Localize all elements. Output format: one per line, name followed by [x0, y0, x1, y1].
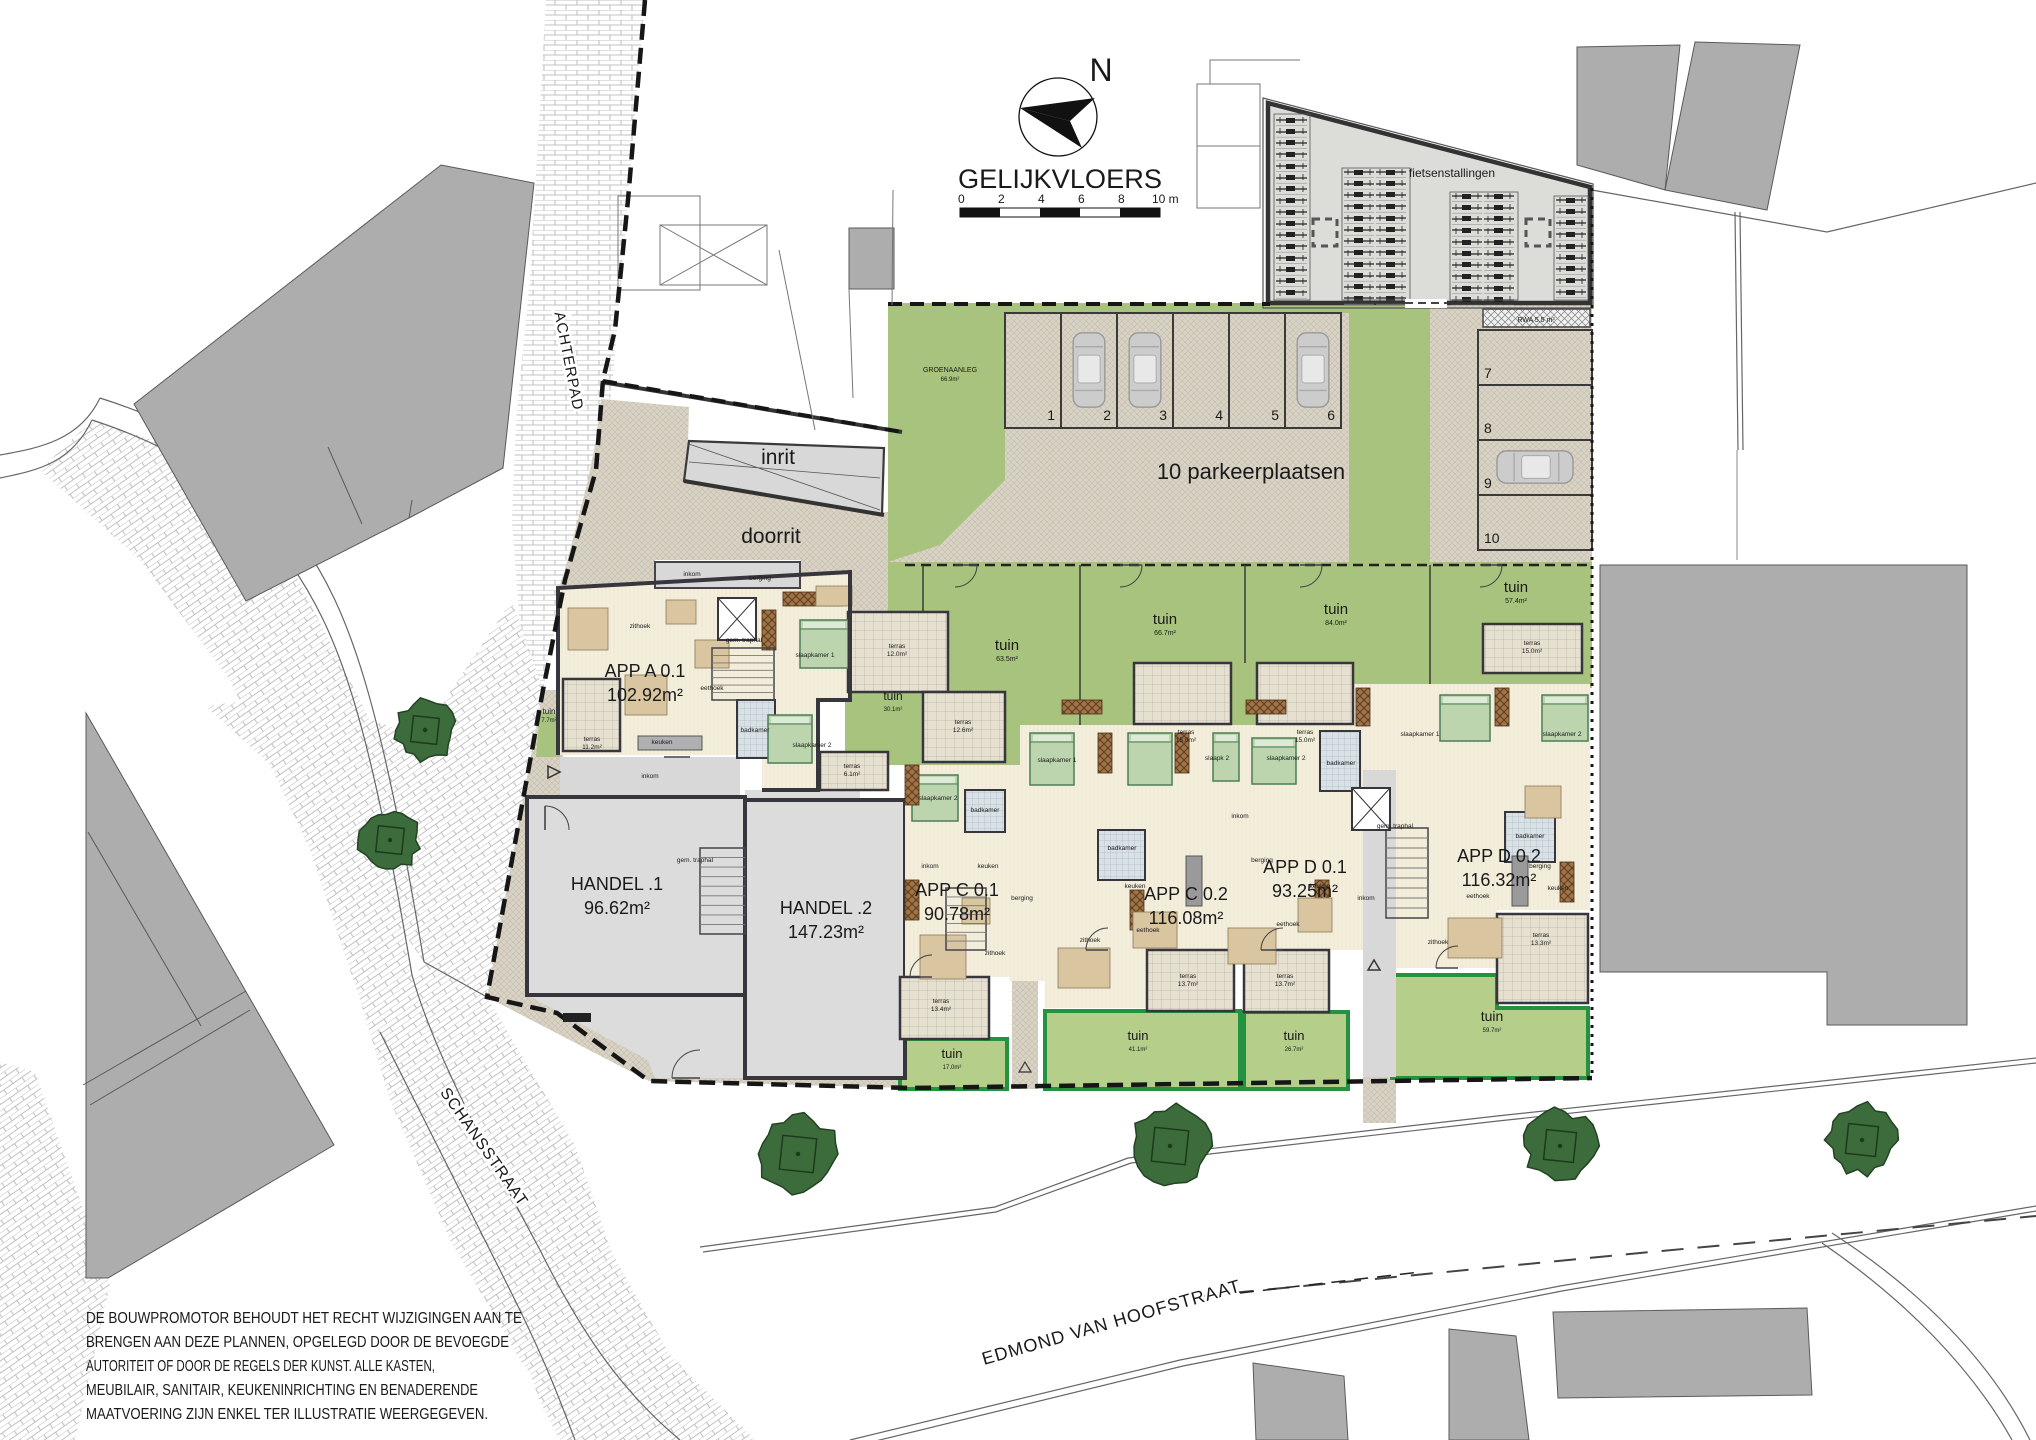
svg-text:6: 6 — [1078, 192, 1085, 206]
svg-text:102.92m²: 102.92m² — [607, 685, 683, 705]
svg-text:13.7m²: 13.7m² — [1275, 981, 1296, 988]
svg-text:10 parkeerplaatsen: 10 parkeerplaatsen — [1157, 459, 1345, 484]
svg-text:3: 3 — [1159, 407, 1167, 423]
svg-text:tuin: tuin — [883, 689, 902, 703]
svg-text:doorrit: doorrit — [741, 525, 801, 548]
svg-text:APP D 0.1: APP D 0.1 — [1263, 857, 1347, 877]
svg-text:26.7m²: 26.7m² — [1285, 1047, 1304, 1053]
svg-text:11.2m²: 11.2m² — [582, 744, 603, 751]
svg-text:keuken: keuken — [652, 739, 673, 746]
svg-text:terras: terras — [1297, 729, 1314, 736]
svg-text:HANDEL .1: HANDEL .1 — [571, 874, 663, 894]
svg-text:slaapkamer 1: slaapkamer 1 — [1037, 757, 1076, 764]
svg-text:HANDEL .2: HANDEL .2 — [780, 898, 872, 918]
svg-text:tuin: tuin — [1284, 1028, 1305, 1043]
svg-text:10 m: 10 m — [1152, 192, 1179, 206]
svg-text:13.3m²: 13.3m² — [1531, 940, 1552, 947]
svg-text:tuin: tuin — [942, 1046, 963, 1061]
svg-text:59.7m²: 59.7m² — [1483, 1028, 1502, 1034]
svg-text:APP C 0.2: APP C 0.2 — [1144, 884, 1228, 904]
svg-text:116.32m²: 116.32m² — [1462, 870, 1537, 890]
svg-text:N: N — [1089, 52, 1112, 88]
svg-text:tuin: tuin — [1324, 601, 1348, 618]
svg-text:tuin: tuin — [543, 707, 556, 716]
svg-text:terras: terras — [584, 736, 601, 743]
svg-text:terras: terras — [844, 763, 861, 770]
svg-text:RWA 5.5 m³: RWA 5.5 m³ — [1517, 317, 1555, 324]
svg-text:terras: terras — [1524, 640, 1541, 647]
svg-text:6.1m²: 6.1m² — [844, 771, 861, 778]
svg-text:inkom: inkom — [1357, 895, 1374, 902]
svg-text:2: 2 — [1103, 407, 1111, 423]
svg-text:keuken: keuken — [1548, 885, 1569, 892]
svg-text:5: 5 — [1271, 407, 1279, 423]
svg-text:terras: terras — [889, 643, 906, 650]
svg-text:9: 9 — [1484, 475, 1492, 491]
svg-text:terras: terras — [1277, 973, 1294, 980]
svg-text:badkamer: badkamer — [1108, 845, 1138, 852]
svg-text:inrit: inrit — [761, 446, 795, 469]
svg-text:tuin: tuin — [1153, 611, 1177, 628]
svg-text:MAATVOERING ZIJN ENKEL TER ILL: MAATVOERING ZIJN ENKEL TER ILLUSTRATIE W… — [86, 1406, 488, 1423]
svg-text:keuken: keuken — [1125, 883, 1146, 890]
svg-text:slaapkamer 2: slaapkamer 2 — [918, 795, 957, 802]
svg-text:MEUBILAIR, SANITAIR, KEUKENINR: MEUBILAIR, SANITAIR, KEUKENINRICHTING EN… — [86, 1382, 478, 1399]
svg-text:zithoek: zithoek — [1428, 939, 1449, 946]
svg-text:badkamer: badkamer — [1516, 833, 1546, 840]
svg-text:badkamer: badkamer — [971, 807, 1001, 814]
svg-text:15.0m²: 15.0m² — [1295, 737, 1316, 744]
svg-text:12.0m²: 12.0m² — [887, 651, 908, 658]
svg-text:tuin: tuin — [995, 637, 1019, 654]
svg-text:57.4m²: 57.4m² — [1505, 598, 1527, 605]
svg-text:terras: terras — [933, 998, 950, 1005]
svg-text:41.1m²: 41.1m² — [1129, 1047, 1148, 1053]
svg-text:keuken: keuken — [1310, 883, 1331, 890]
svg-text:terras: terras — [1533, 932, 1550, 939]
svg-text:84.0m²: 84.0m² — [1325, 620, 1347, 627]
svg-text:gem. traphal: gem. traphal — [1377, 823, 1414, 830]
svg-text:7.7m²: 7.7m² — [541, 718, 556, 724]
svg-text:66.9m²: 66.9m² — [941, 377, 960, 383]
svg-text:APP C 0.1: APP C 0.1 — [915, 880, 999, 900]
svg-text:tuin: tuin — [1504, 579, 1528, 596]
svg-text:66.7m²: 66.7m² — [1154, 630, 1176, 637]
svg-text:berging: berging — [1529, 863, 1551, 870]
svg-text:inkom: inkom — [641, 773, 658, 780]
svg-text:GELIJKVLOERS: GELIJKVLOERS — [958, 164, 1162, 194]
svg-text:96.62m²: 96.62m² — [584, 898, 650, 918]
svg-text:berging: berging — [1011, 895, 1033, 902]
svg-text:zithoek: zithoek — [985, 950, 1006, 957]
svg-text:slaapkamer 2: slaapkamer 2 — [792, 742, 831, 749]
svg-text:17.0m²: 17.0m² — [943, 1065, 962, 1071]
svg-text:slaapkamer 1: slaapkamer 1 — [1400, 731, 1439, 738]
svg-text:berging: berging — [749, 575, 771, 582]
svg-text:30.1m²: 30.1m² — [884, 707, 903, 713]
svg-text:12.6m²: 12.6m² — [953, 727, 974, 734]
svg-text:zithoek: zithoek — [1080, 937, 1101, 944]
svg-text:4: 4 — [1038, 192, 1045, 206]
svg-text:116.08m²: 116.08m² — [1149, 908, 1224, 928]
svg-text:eethoek: eethoek — [1136, 927, 1160, 934]
svg-text:slaapkamer 2: slaapkamer 2 — [1542, 731, 1581, 738]
svg-text:badkamer: badkamer — [741, 727, 771, 734]
svg-text:DE BOUWPROMOTOR BEHOUDT HET RE: DE BOUWPROMOTOR BEHOUDT HET RECHT WIJZIG… — [86, 1310, 522, 1327]
svg-text:8: 8 — [1484, 420, 1492, 436]
svg-text:terras: terras — [1180, 973, 1197, 980]
svg-text:berging: berging — [1251, 857, 1273, 864]
svg-text:APP A 0.1: APP A 0.1 — [605, 661, 686, 681]
svg-text:GROENAANLEG: GROENAANLEG — [923, 367, 977, 374]
svg-text:tuin: tuin — [1128, 1028, 1149, 1043]
svg-text:eethoek: eethoek — [1276, 921, 1300, 928]
svg-text:90.78m²: 90.78m² — [924, 904, 990, 924]
svg-text:1: 1 — [1047, 407, 1055, 423]
svg-text:slaapkamer 1: slaapkamer 1 — [795, 652, 834, 659]
svg-text:147.23m²: 147.23m² — [788, 922, 864, 942]
svg-text:tuin: tuin — [1481, 1008, 1504, 1024]
svg-text:slaapk 2: slaapk 2 — [1205, 755, 1230, 762]
svg-text:terras: terras — [955, 719, 972, 726]
svg-text:eethoek: eethoek — [700, 685, 724, 692]
svg-text:keuken: keuken — [978, 863, 999, 870]
svg-text:4: 4 — [1215, 407, 1223, 423]
svg-text:7: 7 — [1484, 365, 1492, 381]
svg-text:AUTORITEIT OF DOOR DE REGELS D: AUTORITEIT OF DOOR DE REGELS DER KUNST. … — [86, 1358, 435, 1375]
svg-text:inkom: inkom — [921, 863, 938, 870]
svg-text:13.7m²: 13.7m² — [1178, 981, 1199, 988]
svg-text:2: 2 — [998, 192, 1005, 206]
svg-text:8: 8 — [1118, 192, 1125, 206]
svg-text:0: 0 — [958, 192, 965, 206]
svg-text:13.4m²: 13.4m² — [931, 1006, 952, 1013]
svg-text:10: 10 — [1484, 530, 1500, 546]
svg-text:fietsenstallingen: fietsenstallingen — [1409, 166, 1495, 180]
svg-text:15.0m²: 15.0m² — [1522, 648, 1543, 655]
svg-text:slaapkamer 2: slaapkamer 2 — [1266, 755, 1305, 762]
svg-text:zithoek: zithoek — [630, 623, 651, 630]
svg-text:eethoek: eethoek — [1466, 893, 1490, 900]
svg-text:inkom: inkom — [1231, 813, 1248, 820]
svg-text:63.5m²: 63.5m² — [996, 656, 1018, 663]
svg-text:15.0m²: 15.0m² — [1176, 737, 1197, 744]
svg-text:gem. traphal: gem. traphal — [726, 637, 763, 644]
svg-text:inkom: inkom — [683, 571, 700, 578]
svg-text:badkamer: badkamer — [1327, 760, 1357, 767]
svg-text:terras: terras — [1178, 729, 1195, 736]
svg-text:gem. traphal: gem. traphal — [677, 857, 714, 864]
svg-text:6: 6 — [1327, 407, 1335, 423]
svg-text:BRENGEN AAN DEZE PLANNEN, OPGE: BRENGEN AAN DEZE PLANNEN, OPGELEGD DOOR … — [86, 1334, 509, 1351]
